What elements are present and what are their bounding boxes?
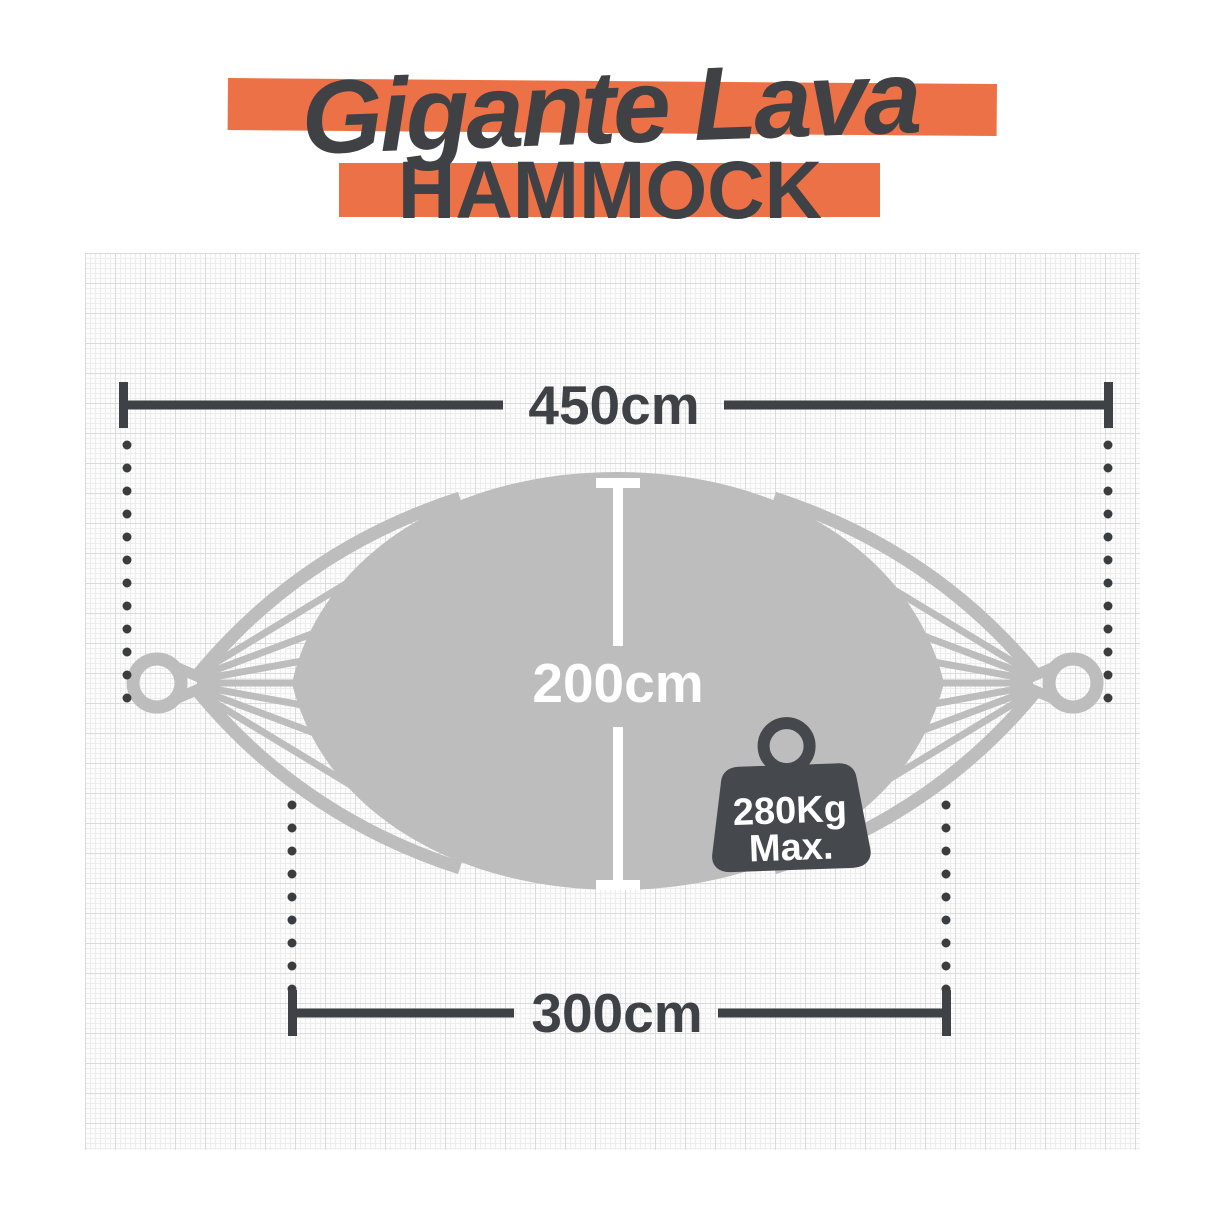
width-label: 200cm: [532, 652, 703, 714]
bed-length-label: 300cm: [531, 982, 702, 1044]
total-length-label: 450cm: [528, 374, 699, 436]
weight-max-label: Max.: [748, 826, 834, 871]
total-length-dimension: 450cm: [124, 374, 1109, 436]
hammock-right-ring-icon: [1031, 659, 1097, 707]
hammock-left-ring-icon: [133, 659, 199, 707]
hammock-infographic: Gigante Lava HAMMOCK: [0, 0, 1214, 1214]
bed-length-dimension: 300cm: [293, 982, 947, 1044]
dimension-diagram: 450cm 200cm 300cm 280Kg Max.: [0, 0, 1214, 1214]
